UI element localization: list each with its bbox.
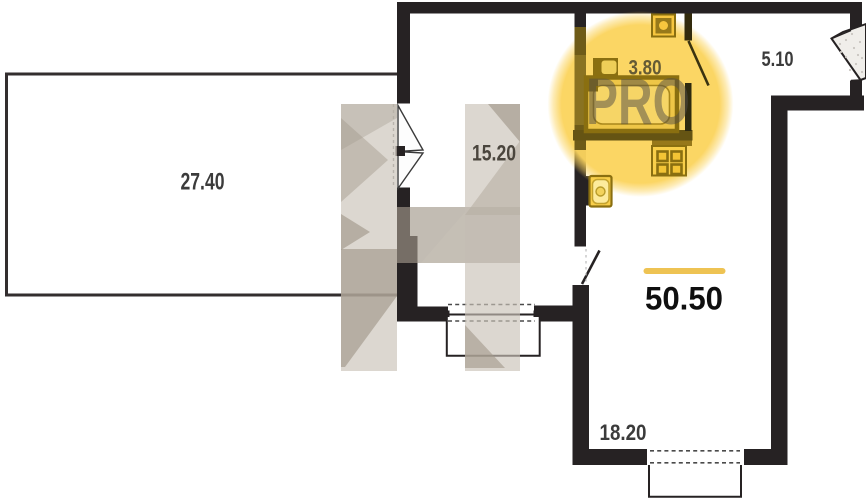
svg-text:50.50: 50.50 <box>645 281 723 317</box>
svg-text:18.20: 18.20 <box>600 420 647 445</box>
svg-text:PRO: PRO <box>586 64 690 138</box>
svg-text:27.40: 27.40 <box>181 169 225 196</box>
svg-text:15.20: 15.20 <box>472 141 516 166</box>
svg-text:5.10: 5.10 <box>762 48 794 71</box>
